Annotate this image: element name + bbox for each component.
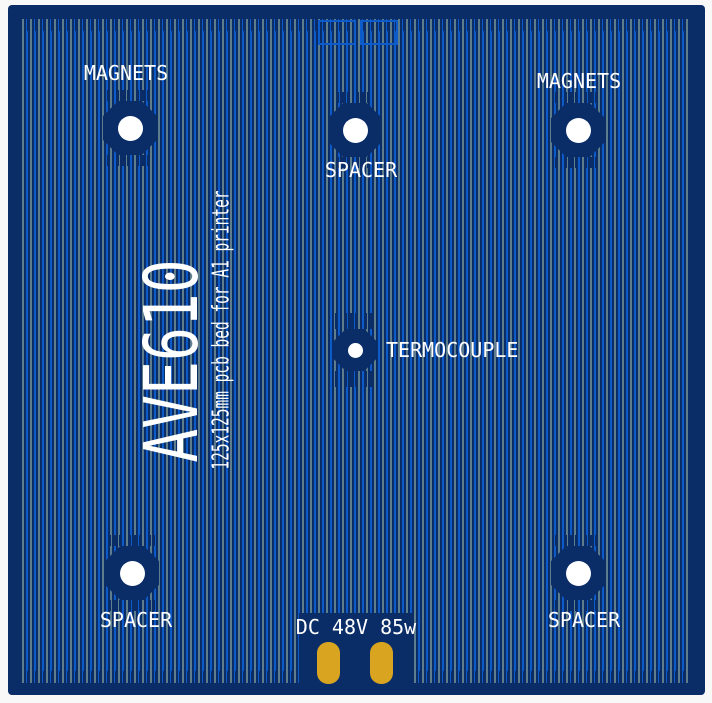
heater-loop-outline-left bbox=[318, 20, 356, 45]
pad-copper bbox=[105, 546, 159, 600]
power-connector-zone: DC 48V 85w bbox=[299, 613, 413, 695]
mount-hole-top-left bbox=[118, 116, 143, 141]
trace-comb bbox=[555, 92, 601, 103]
pad-copper bbox=[334, 329, 376, 371]
pcb-board: MAGNETS SPACER MAGNETS TERMOCOUPLE SPACE… bbox=[8, 5, 705, 695]
trace-comb bbox=[335, 313, 375, 329]
trace-comb bbox=[555, 157, 601, 168]
mount-hole-bottom-right bbox=[566, 561, 591, 586]
mount-hole-top-right bbox=[566, 118, 591, 143]
label-spacer-bottom-left: SPACER bbox=[100, 610, 172, 630]
thermocouple-hole bbox=[348, 343, 363, 358]
pad-copper bbox=[103, 101, 157, 155]
label-magnets-top-right: MAGNETS bbox=[537, 71, 621, 91]
board-subtitle: 125x125mm pcb bed for A1 printer bbox=[211, 190, 234, 469]
label-termocouple: TERMOCOUPLE bbox=[386, 340, 518, 360]
trace-comb bbox=[555, 535, 601, 546]
heater-loop-outline-right bbox=[360, 20, 398, 45]
mount-pad-bottom-left bbox=[105, 535, 159, 611]
pad-copper bbox=[551, 546, 605, 600]
mount-hole-top-center bbox=[343, 118, 368, 143]
trace-comb bbox=[109, 535, 155, 546]
trace-hairpin-top bbox=[22, 19, 690, 31]
power-pad-1 bbox=[317, 642, 340, 684]
mount-pad-top-right bbox=[551, 92, 605, 168]
trace-comb bbox=[332, 92, 378, 103]
trace-comb bbox=[107, 90, 153, 101]
mount-pad-top-left bbox=[103, 90, 157, 166]
mount-hole-bottom-left bbox=[120, 561, 145, 586]
thermocouple-pad bbox=[334, 313, 376, 387]
trace-comb bbox=[107, 155, 153, 166]
mount-pad-bottom-right bbox=[551, 535, 605, 611]
power-rating-label: DC 48V 85w bbox=[296, 615, 416, 639]
trace-comb bbox=[335, 371, 375, 387]
pad-copper bbox=[328, 103, 382, 157]
label-magnets-top-left: MAGNETS bbox=[84, 63, 168, 83]
label-spacer-bottom-right: SPACER bbox=[548, 610, 620, 630]
mount-pad-top-center bbox=[328, 92, 382, 168]
pad-copper bbox=[551, 103, 605, 157]
label-spacer-top-center: SPACER bbox=[325, 160, 397, 180]
board-title: AVE610 bbox=[135, 259, 209, 462]
power-pad-2 bbox=[370, 642, 393, 684]
